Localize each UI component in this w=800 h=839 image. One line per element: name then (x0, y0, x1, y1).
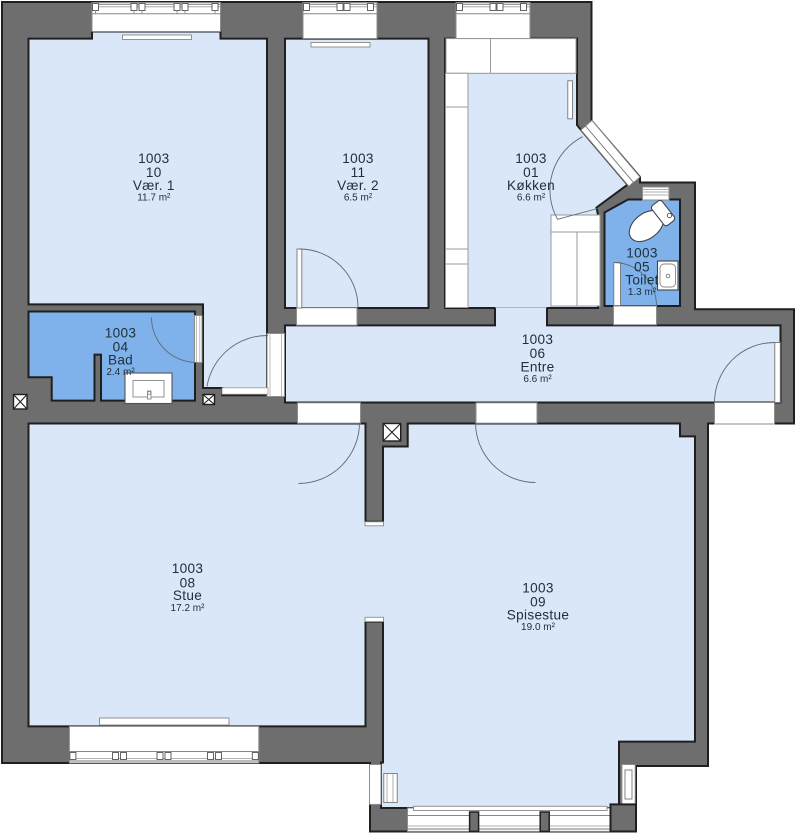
svg-text:Stue: Stue (173, 588, 202, 603)
svg-text:1003: 1003 (342, 151, 373, 166)
svg-text:Toilet: Toilet (625, 273, 659, 288)
svg-text:1003: 1003 (522, 332, 553, 347)
svg-text:1003: 1003 (522, 581, 553, 596)
svg-text:17.2 m²: 17.2 m² (171, 603, 206, 614)
svg-text:6.6 m²: 6.6 m² (517, 192, 546, 203)
svg-text:Køkken: Køkken (507, 178, 555, 193)
svg-text:1003: 1003 (138, 151, 169, 166)
svg-text:Entre: Entre (521, 360, 555, 375)
svg-text:1003: 1003 (515, 151, 546, 166)
svg-text:1003: 1003 (626, 246, 657, 261)
svg-text:11.7 m²: 11.7 m² (137, 192, 171, 203)
svg-text:Spisestue: Spisestue (507, 608, 569, 623)
svg-text:1.3 m²: 1.3 m² (628, 287, 657, 298)
svg-text:2.4 m²: 2.4 m² (106, 367, 135, 378)
svg-text:1003: 1003 (172, 561, 203, 576)
svg-text:1003: 1003 (105, 326, 136, 341)
svg-text:Vær. 2: Vær. 2 (337, 178, 379, 193)
svg-text:Vær. 1: Vær. 1 (133, 178, 175, 193)
svg-text:6.6 m²: 6.6 m² (523, 374, 552, 385)
svg-text:6.5 m²: 6.5 m² (344, 192, 373, 203)
svg-text:19.0 m²: 19.0 m² (521, 622, 556, 633)
svg-text:Bad: Bad (108, 353, 133, 368)
